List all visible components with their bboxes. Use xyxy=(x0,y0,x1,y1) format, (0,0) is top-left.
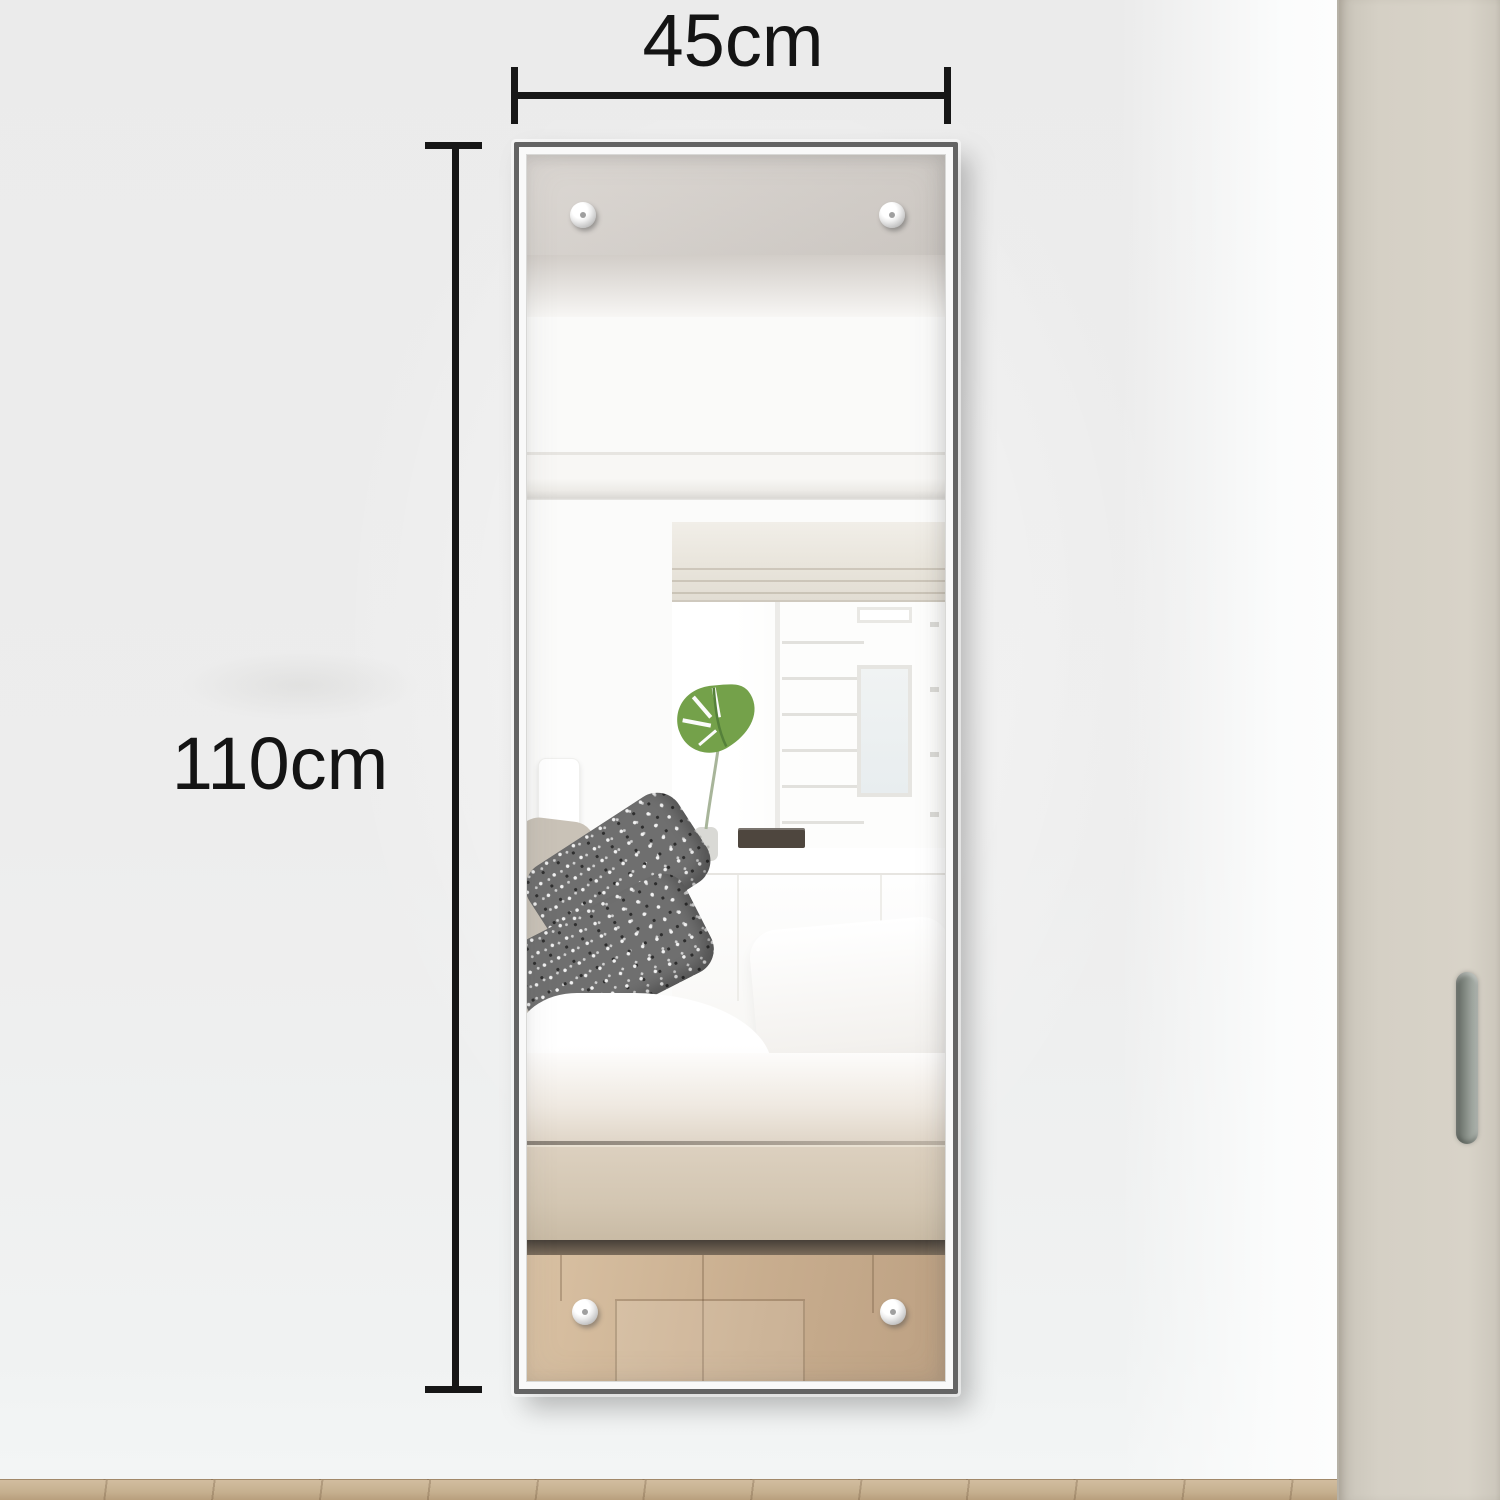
width-dimension-label: 45cm xyxy=(515,4,951,78)
window-shutter-slats xyxy=(782,608,864,844)
shutter-hinge xyxy=(930,752,939,757)
mounting-screw-bottom-left xyxy=(572,1299,598,1325)
height-dimension-line xyxy=(452,145,459,1390)
shutter-hinge xyxy=(930,812,939,817)
width-dimension-cap-right xyxy=(944,67,951,124)
floor-plank-seam xyxy=(872,1255,874,1313)
width-dimension-cap-left xyxy=(511,67,518,124)
shutter-hinge xyxy=(930,622,939,627)
wall-mirror xyxy=(514,142,958,1394)
width-dimension-line xyxy=(518,92,944,99)
window-pane xyxy=(857,665,912,797)
floor-plank-seam xyxy=(560,1255,562,1301)
window-ledge xyxy=(857,607,912,623)
mounting-screw-bottom-right xyxy=(880,1299,906,1325)
height-dimension-label: 110cm xyxy=(140,727,420,801)
mounting-screw-top-left xyxy=(570,202,596,228)
door-handle xyxy=(1456,972,1478,1144)
product-dimension-image: 45cm 110cm xyxy=(0,0,1500,1500)
height-dimension-cap-bottom xyxy=(425,1386,482,1393)
headboard-panel-line xyxy=(737,875,739,1001)
mounting-screw-top-right xyxy=(879,202,905,228)
reflection-ceiling-fade xyxy=(527,255,945,317)
room-floor-strip xyxy=(0,1479,1500,1500)
sliding-door-panel xyxy=(1337,0,1500,1500)
under-bed-shadow xyxy=(527,1240,945,1255)
shade-pleats xyxy=(672,558,945,600)
mirror-glass-reflection xyxy=(527,155,945,1381)
height-dimension-cap-top xyxy=(425,142,482,149)
reflection-crown-molding xyxy=(527,452,945,500)
reflection-ceiling xyxy=(527,317,945,452)
wall-edge-highlight xyxy=(1120,0,1337,1500)
floor-plank xyxy=(615,1301,805,1381)
shutter-hinge xyxy=(930,687,939,692)
wall-smudge xyxy=(180,650,420,720)
window-roman-shade xyxy=(672,522,945,602)
bed-base xyxy=(527,1145,945,1240)
duvet xyxy=(527,1053,945,1149)
